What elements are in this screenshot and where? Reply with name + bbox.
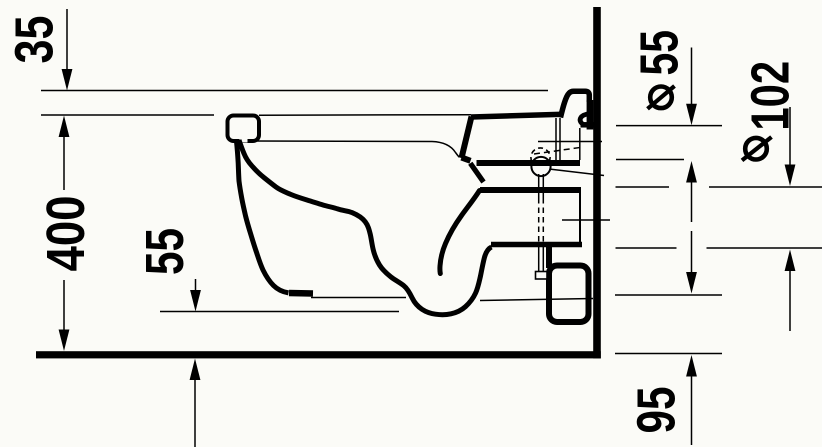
svg-text:102: 102 <box>740 61 800 131</box>
svg-text:35: 35 <box>5 16 65 64</box>
svg-text:55: 55 <box>629 30 689 76</box>
svg-text:400: 400 <box>36 196 96 272</box>
svg-text:95: 95 <box>627 387 687 434</box>
svg-text:55: 55 <box>135 228 195 275</box>
